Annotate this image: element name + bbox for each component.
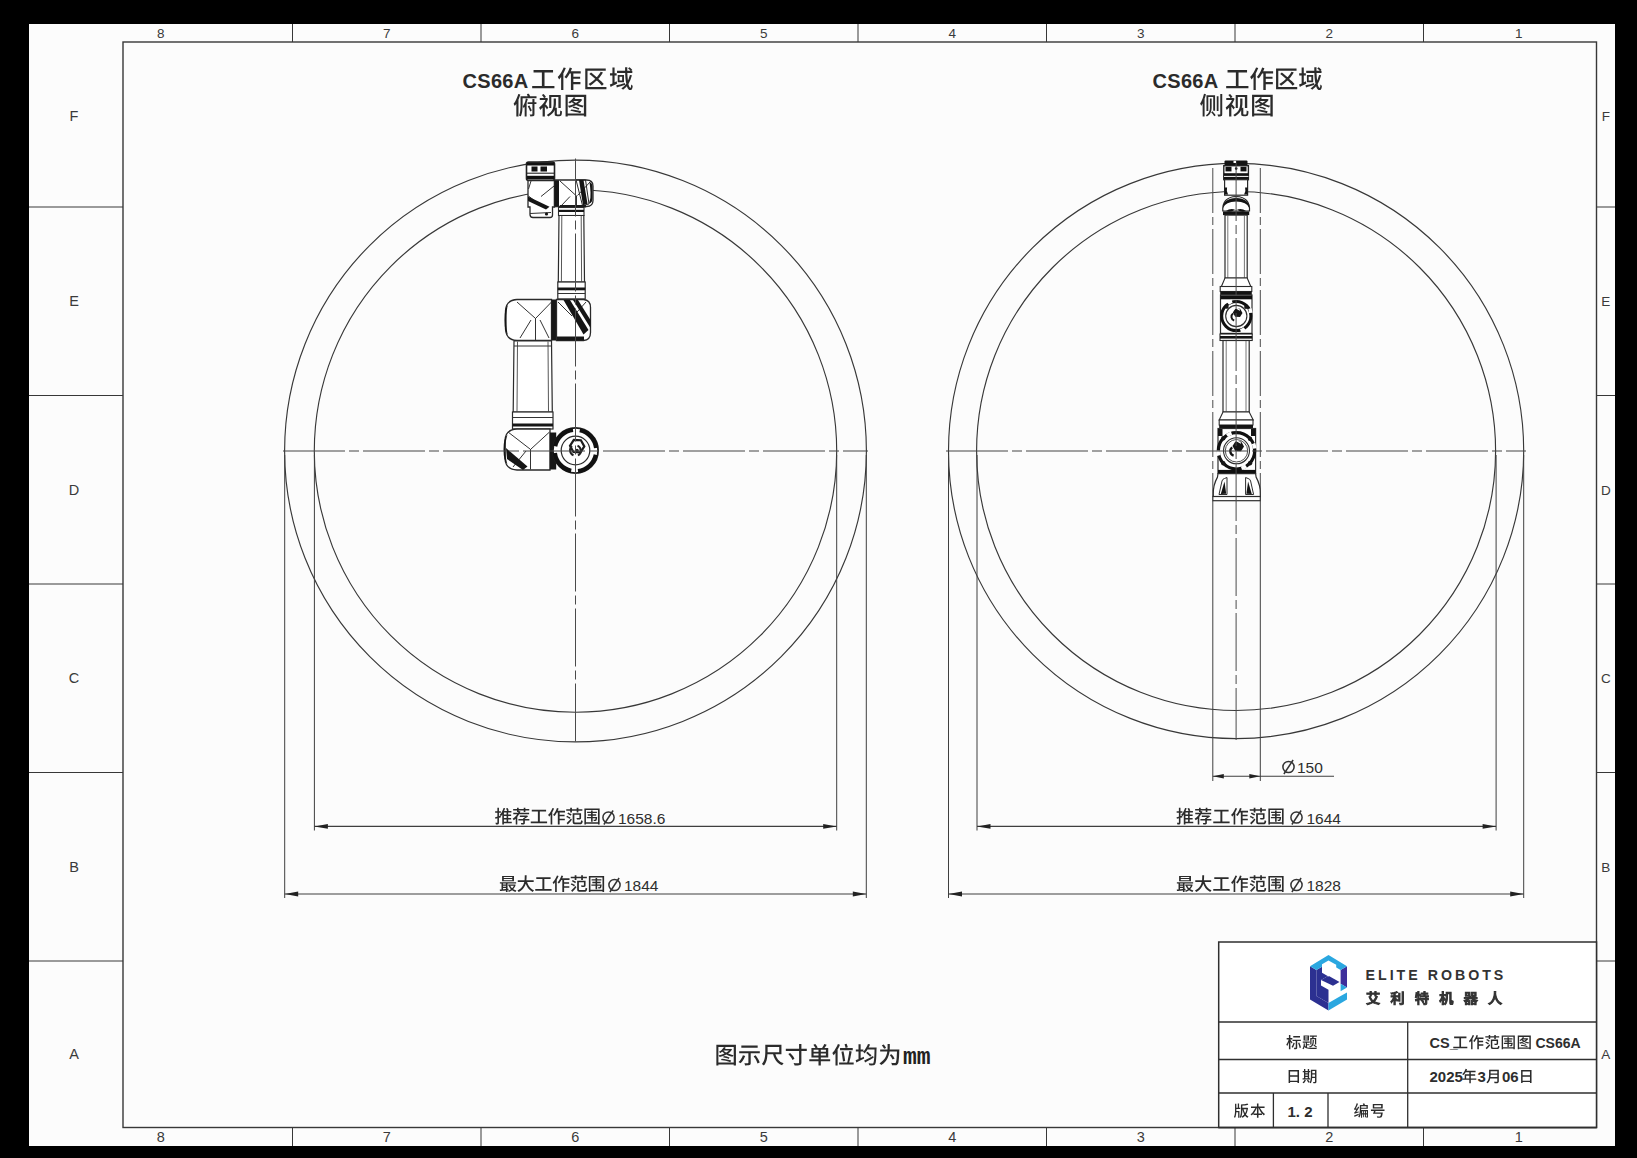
svg-text:1. 2: 1. 2	[1287, 1103, 1312, 1120]
svg-text:D: D	[1601, 483, 1611, 498]
svg-text:5: 5	[760, 26, 768, 41]
svg-text:3: 3	[1137, 26, 1145, 41]
svg-text:B: B	[69, 859, 79, 875]
svg-text:2025: 2025	[1430, 1068, 1463, 1085]
svg-text:5: 5	[760, 1129, 768, 1145]
svg-text:6: 6	[571, 1129, 579, 1145]
svg-text:1644: 1644	[1307, 810, 1342, 827]
svg-text:7: 7	[383, 1129, 391, 1145]
svg-text:ELITE ROBOTS: ELITE ROBOTS	[1366, 967, 1507, 983]
svg-text:B: B	[1601, 860, 1610, 875]
svg-text:CS66A: CS66A	[1153, 70, 1219, 92]
svg-text:4: 4	[949, 26, 957, 41]
svg-text:CS66A: CS66A	[463, 70, 529, 92]
svg-text:A: A	[69, 1046, 79, 1062]
svg-text:A: A	[1601, 1047, 1610, 1062]
svg-text:2: 2	[1325, 1129, 1333, 1145]
svg-text:1828: 1828	[1307, 877, 1341, 894]
svg-text:4: 4	[948, 1129, 956, 1145]
svg-text:E: E	[69, 293, 79, 309]
svg-text:3: 3	[1137, 1129, 1145, 1145]
svg-text:1844: 1844	[624, 877, 659, 894]
svg-text:7: 7	[383, 26, 391, 41]
svg-text:8: 8	[157, 1129, 165, 1145]
svg-text:8: 8	[157, 26, 165, 41]
svg-text:C: C	[1601, 671, 1611, 686]
svg-text:mm: mm	[903, 1045, 931, 1071]
svg-text:06: 06	[1502, 1068, 1519, 1085]
svg-text:CS66A: CS66A	[1536, 1035, 1581, 1051]
svg-text:1: 1	[1515, 26, 1523, 41]
svg-text:6: 6	[572, 26, 580, 41]
svg-text:3: 3	[1478, 1068, 1486, 1085]
svg-text:1658.6: 1658.6	[618, 810, 665, 827]
svg-text:1: 1	[1515, 1129, 1523, 1145]
svg-text:2: 2	[1326, 26, 1334, 41]
svg-text:D: D	[69, 482, 79, 498]
svg-text:F: F	[70, 108, 79, 124]
svg-text:150: 150	[1297, 759, 1323, 776]
svg-text:C: C	[69, 670, 79, 686]
svg-text:E: E	[1601, 294, 1610, 309]
svg-text:F: F	[1602, 109, 1610, 124]
